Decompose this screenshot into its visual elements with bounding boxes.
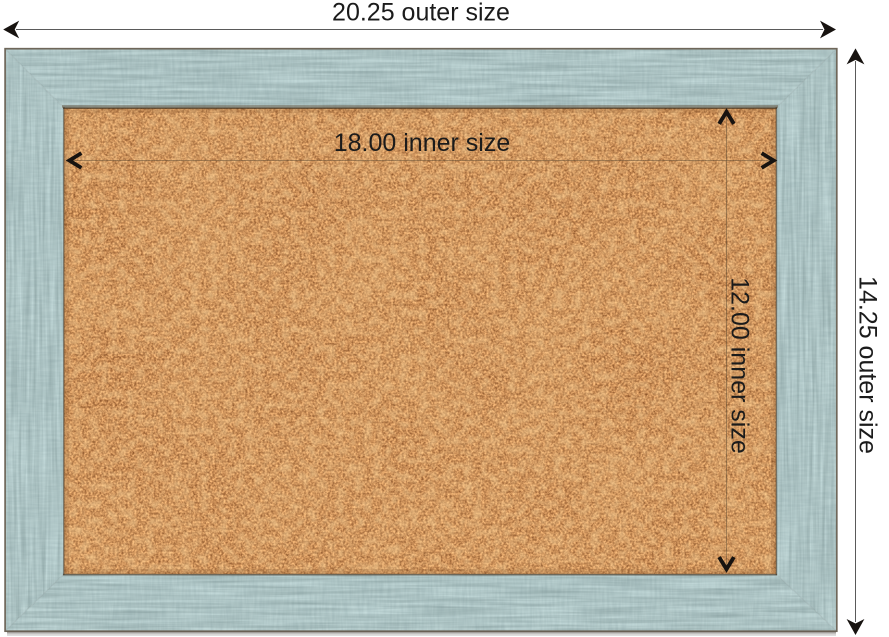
svg-text:14.25 outer size: 14.25 outer size	[854, 276, 882, 454]
svg-text:20.25 outer size: 20.25 outer size	[332, 0, 510, 27]
svg-text:12.00 inner size: 12.00 inner size	[726, 277, 754, 454]
svg-text:18.00 inner size: 18.00 inner size	[334, 129, 511, 157]
